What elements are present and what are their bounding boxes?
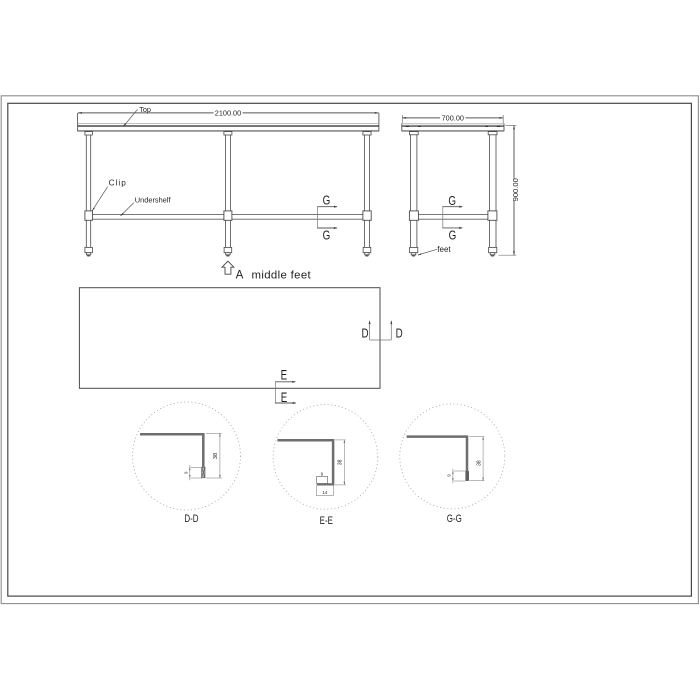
svg-text:E: E [281, 390, 288, 406]
svg-text:G: G [323, 229, 331, 242]
svg-text:A: A [236, 269, 244, 282]
svg-text:900.00: 900.00 [511, 178, 520, 201]
svg-text:E-E: E-E [320, 515, 334, 528]
svg-text:middle feet: middle feet [252, 270, 312, 282]
svg-text:feet: feet [437, 245, 451, 254]
svg-text:G-G: G-G [447, 513, 462, 526]
svg-text:Top: Top [139, 105, 151, 114]
svg-text:D-D: D-D [184, 513, 198, 526]
svg-text:700.00: 700.00 [442, 114, 464, 123]
svg-text:38: 38 [213, 453, 219, 459]
svg-text:E: E [281, 367, 288, 383]
svg-text:G: G [323, 195, 331, 208]
svg-text:D: D [361, 328, 368, 341]
svg-text:14: 14 [322, 490, 328, 495]
svg-text:D: D [396, 328, 403, 341]
svg-text:38: 38 [476, 460, 482, 466]
svg-text:G: G [448, 195, 456, 208]
svg-text:2100.00: 2100.00 [215, 109, 241, 118]
svg-text:Clip: Clip [109, 179, 127, 188]
svg-text:Undershelf: Undershelf [135, 195, 172, 204]
svg-text:38: 38 [338, 459, 344, 465]
svg-text:G: G [449, 229, 457, 242]
